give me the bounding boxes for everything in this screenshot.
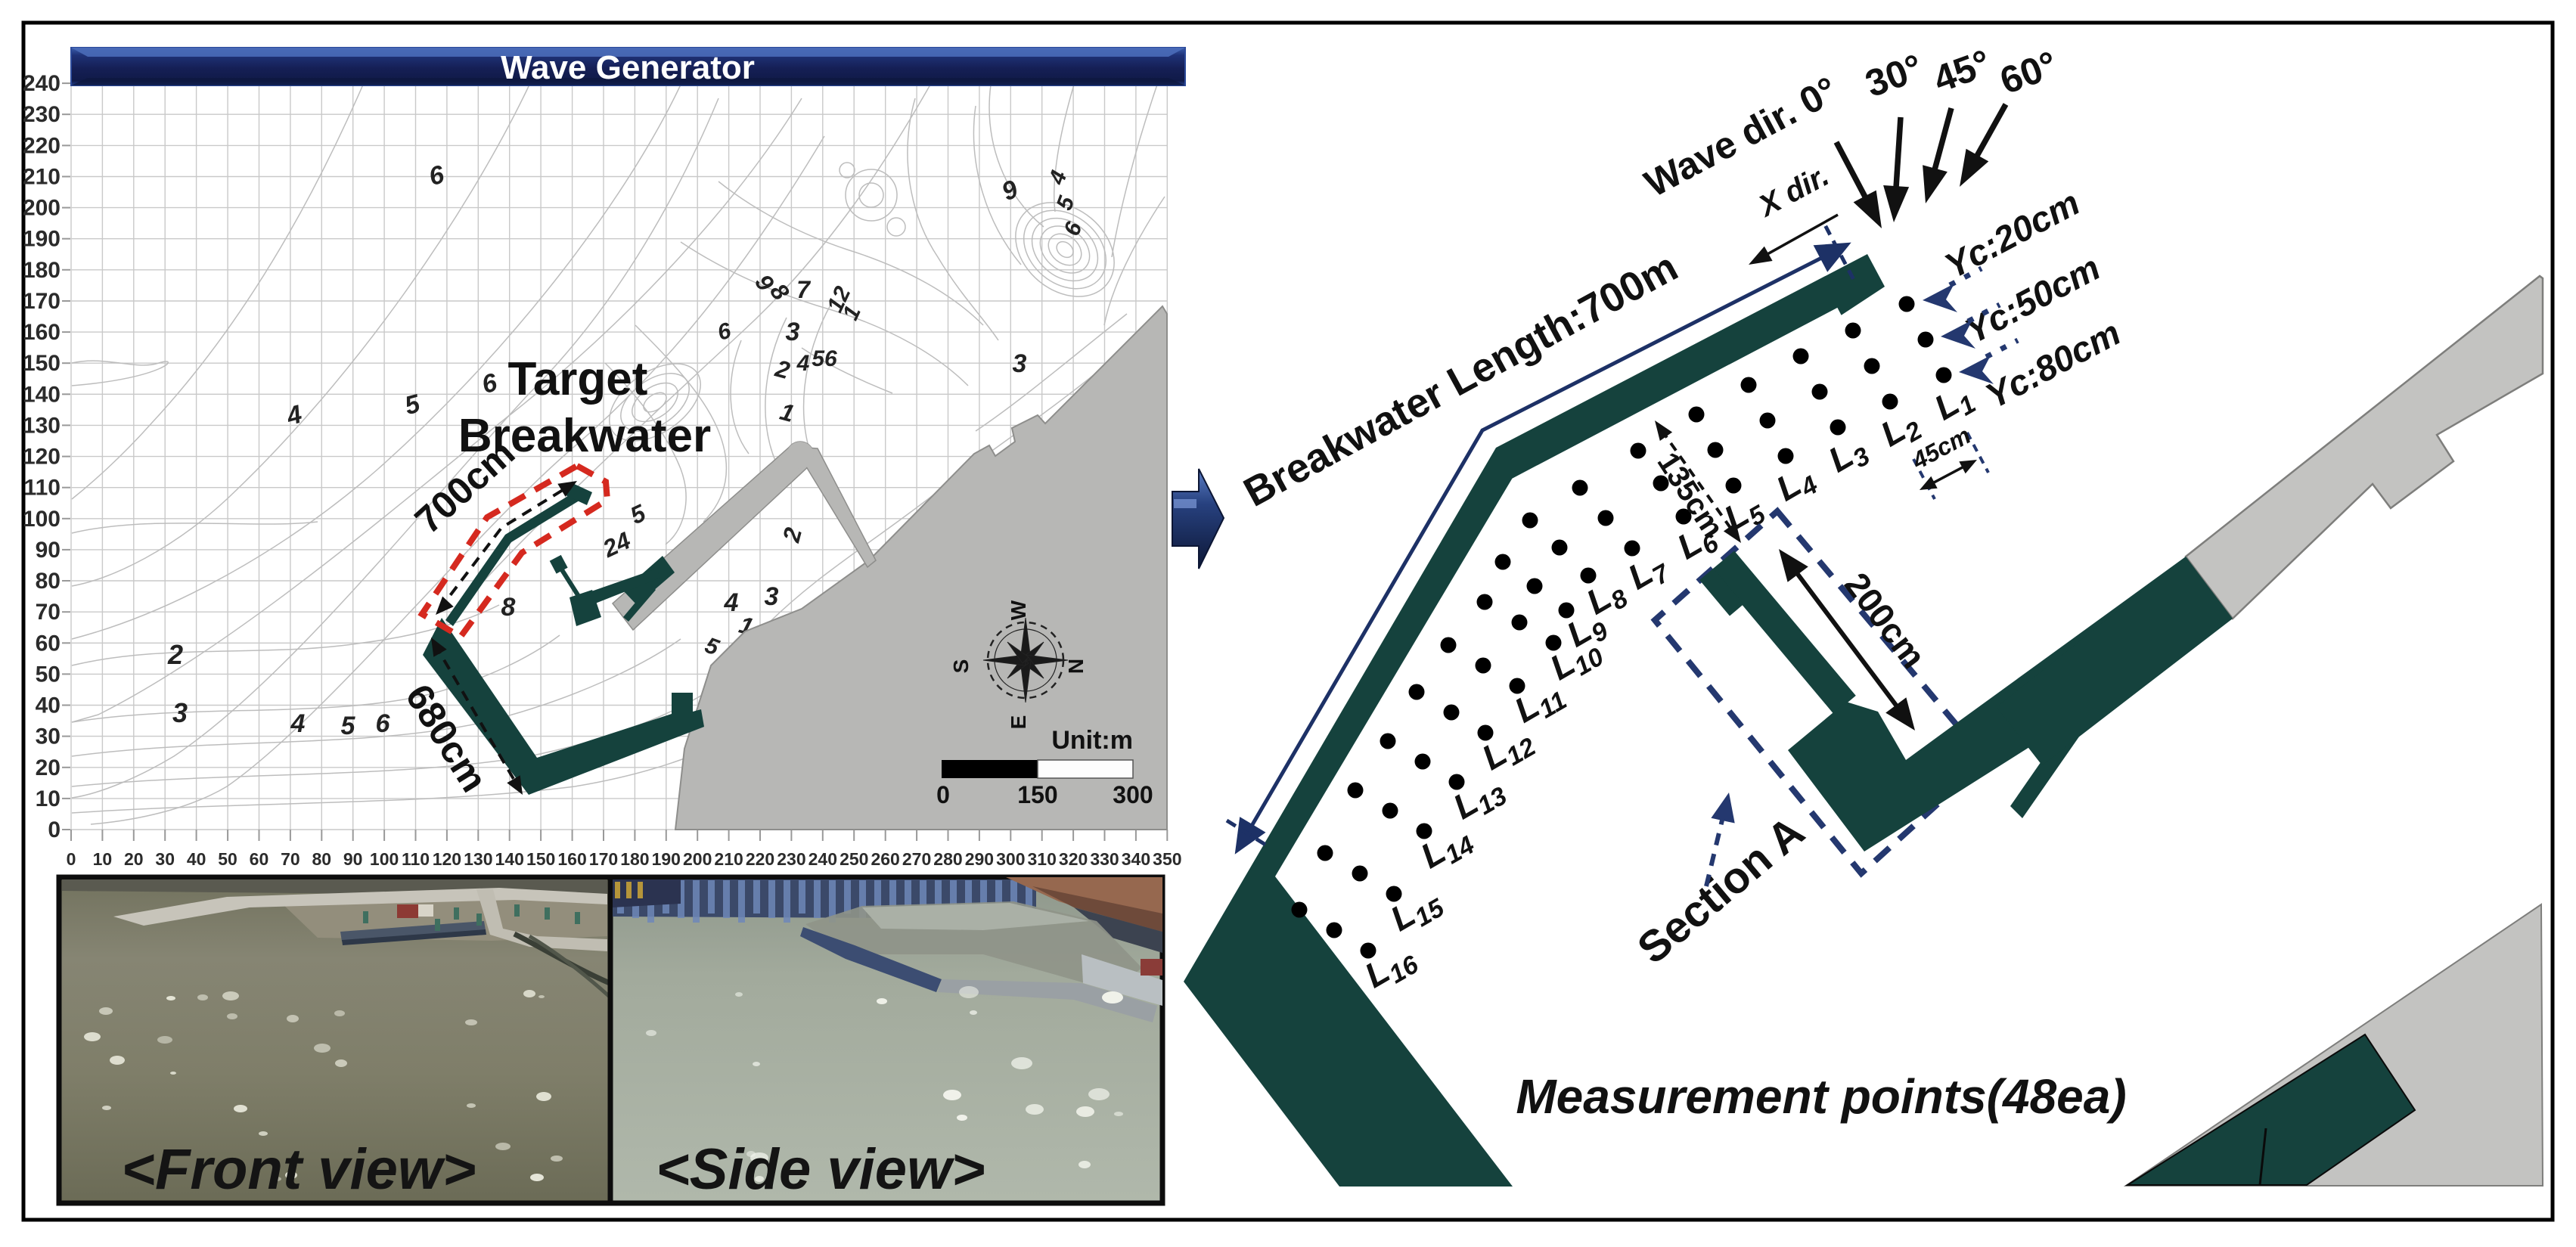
svg-text:140: 140: [23, 382, 61, 407]
svg-text:200: 200: [23, 196, 61, 221]
svg-text:190: 190: [23, 227, 61, 252]
svg-text:180: 180: [620, 849, 649, 869]
svg-text:330: 330: [1090, 849, 1119, 869]
svg-text:4: 4: [724, 588, 739, 617]
svg-text:S: S: [949, 659, 973, 674]
svg-text:56: 56: [812, 346, 837, 371]
svg-text:7: 7: [796, 276, 812, 303]
svg-text:130: 130: [464, 849, 492, 869]
svg-text:240: 240: [808, 849, 837, 869]
svg-text:130: 130: [23, 413, 61, 438]
svg-text:120: 120: [23, 445, 61, 470]
svg-text:110: 110: [24, 476, 61, 501]
svg-text:60: 60: [36, 631, 61, 656]
svg-text:Unit:m: Unit:m: [1051, 726, 1133, 755]
svg-text:<Front view>: <Front view>: [122, 1137, 476, 1202]
svg-text:160: 160: [557, 849, 586, 869]
svg-text:5: 5: [341, 712, 356, 740]
svg-text:250: 250: [840, 849, 868, 869]
svg-text:50: 50: [36, 662, 61, 687]
svg-text:210: 210: [714, 849, 743, 869]
svg-text:210: 210: [23, 164, 61, 189]
svg-text:170: 170: [589, 849, 618, 869]
svg-text:6: 6: [376, 709, 391, 738]
svg-text:0: 0: [67, 849, 76, 869]
svg-text:8: 8: [501, 593, 516, 622]
svg-text:Wave Generator: Wave Generator: [501, 49, 755, 86]
svg-text:40: 40: [36, 693, 61, 718]
svg-text:300: 300: [1113, 781, 1153, 808]
svg-text:260: 260: [871, 849, 899, 869]
svg-text:90: 90: [343, 849, 363, 869]
svg-text:170: 170: [23, 289, 61, 314]
svg-text:3: 3: [1013, 349, 1027, 378]
svg-text:310: 310: [1028, 849, 1057, 869]
svg-text:20: 20: [36, 755, 61, 780]
svg-text:<Side view>: <Side view>: [656, 1137, 985, 1202]
svg-text:180: 180: [23, 258, 61, 283]
svg-text:240: 240: [23, 71, 61, 96]
svg-text:150: 150: [23, 351, 61, 376]
svg-text:Measurement points(48ea): Measurement points(48ea): [1516, 1069, 2126, 1124]
svg-text:Target: Target: [508, 353, 648, 405]
svg-text:3: 3: [172, 697, 188, 728]
svg-text:190: 190: [652, 849, 681, 869]
svg-text:3: 3: [765, 582, 779, 611]
svg-text:120: 120: [433, 849, 461, 869]
svg-text:350: 350: [1153, 849, 1181, 869]
svg-text:0: 0: [48, 817, 61, 842]
svg-text:300: 300: [996, 849, 1025, 869]
svg-text:280: 280: [933, 849, 962, 869]
svg-text:4: 4: [290, 709, 306, 738]
svg-text:70: 70: [281, 849, 300, 869]
svg-text:3: 3: [786, 318, 800, 346]
svg-text:30: 30: [155, 849, 175, 869]
svg-text:30: 30: [36, 724, 61, 749]
svg-text:10: 10: [36, 786, 61, 811]
svg-text:160: 160: [23, 320, 61, 345]
svg-text:70: 70: [36, 600, 61, 625]
svg-text:20: 20: [124, 849, 144, 869]
svg-text:220: 220: [746, 849, 774, 869]
svg-text:4: 4: [796, 351, 810, 376]
svg-text:N: N: [1064, 659, 1088, 674]
svg-text:140: 140: [495, 849, 524, 869]
svg-text:10: 10: [93, 849, 113, 869]
svg-text:270: 270: [902, 849, 931, 869]
svg-text:220: 220: [23, 133, 61, 158]
svg-text:80: 80: [312, 849, 331, 869]
svg-text:0: 0: [936, 781, 950, 808]
svg-text:E: E: [1007, 715, 1030, 730]
svg-text:100: 100: [370, 849, 399, 869]
svg-text:150: 150: [526, 849, 555, 869]
svg-text:150: 150: [1017, 781, 1057, 808]
svg-text:320: 320: [1059, 849, 1088, 869]
svg-text:230: 230: [777, 849, 805, 869]
svg-text:200: 200: [683, 849, 712, 869]
svg-text:2: 2: [167, 639, 183, 670]
svg-text:50: 50: [218, 849, 237, 869]
svg-text:Breakwater: Breakwater: [458, 410, 711, 462]
svg-text:40: 40: [187, 849, 206, 869]
svg-text:110: 110: [402, 849, 430, 869]
svg-text:W: W: [1007, 600, 1030, 620]
svg-text:90: 90: [36, 538, 61, 563]
svg-text:340: 340: [1122, 849, 1150, 869]
svg-text:290: 290: [965, 849, 994, 869]
svg-text:100: 100: [23, 507, 61, 532]
svg-text:230: 230: [23, 102, 61, 127]
svg-text:80: 80: [36, 569, 61, 594]
svg-text:60: 60: [250, 849, 269, 869]
